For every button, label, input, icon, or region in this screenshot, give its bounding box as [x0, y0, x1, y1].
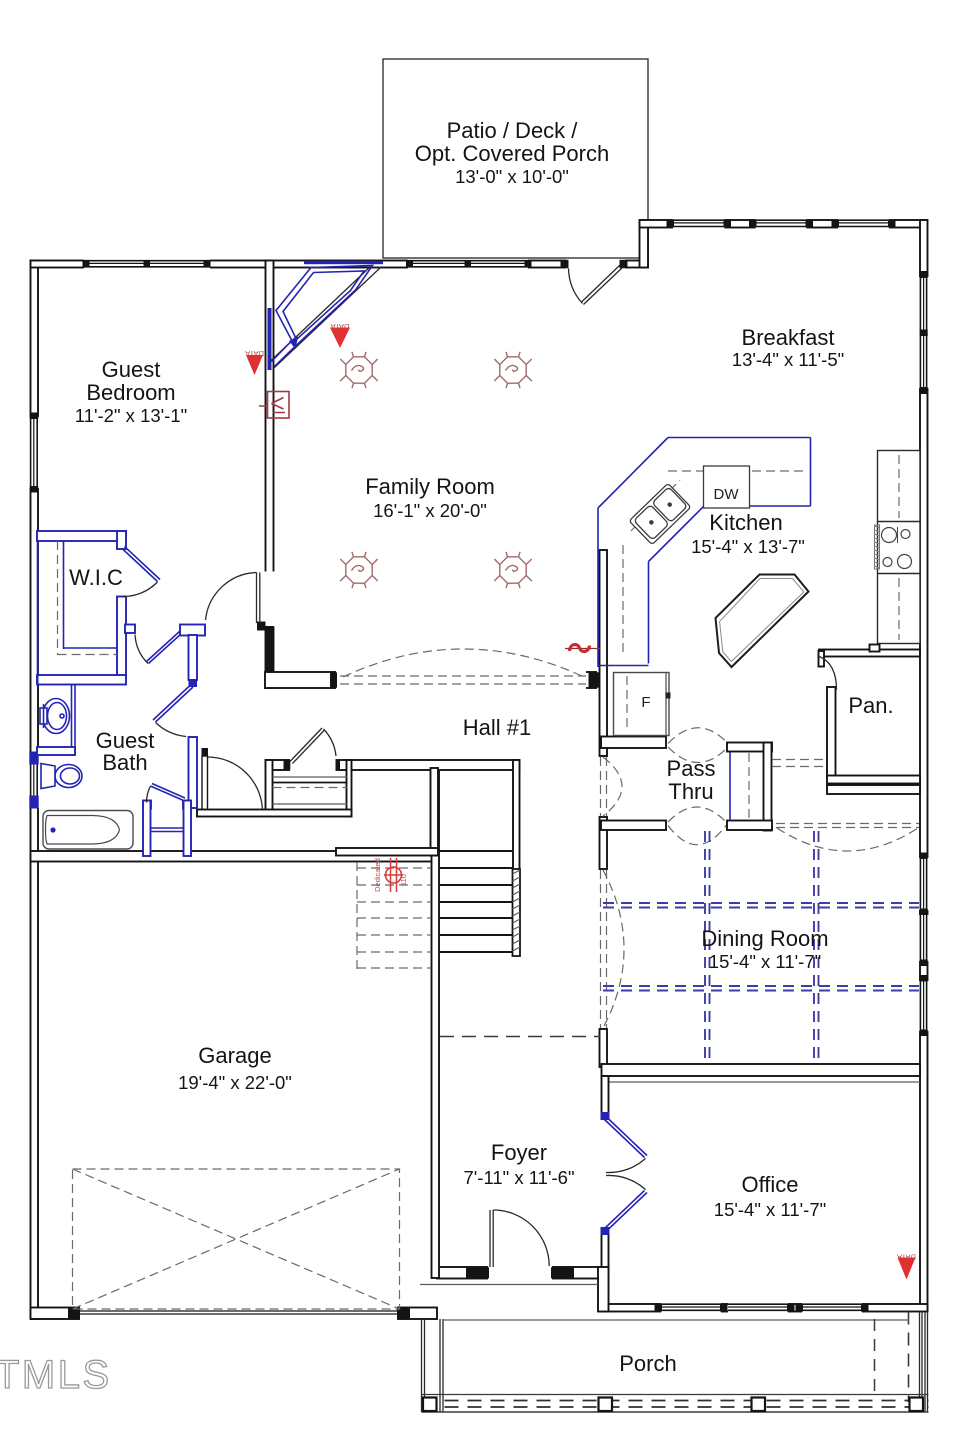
svg-text:7'-11" x 11'-6": 7'-11" x 11'-6" [463, 1167, 574, 1188]
svg-text:Dedicated: Dedicated [373, 858, 382, 892]
svg-text:Guest: Guest [102, 357, 161, 382]
svg-text:Kitchen: Kitchen [709, 510, 782, 535]
svg-text:15'-4" x 13'-7": 15'-4" x 13'-7" [691, 536, 805, 557]
svg-text:Bath: Bath [102, 750, 147, 775]
svg-text:Office: Office [741, 1172, 798, 1197]
svg-text:Porch: Porch [619, 1351, 676, 1376]
svg-text:16'-1" x 20'-0": 16'-1" x 20'-0" [373, 500, 487, 521]
svg-text:DATA: DATA [331, 322, 350, 331]
svg-text:15'-4" x 11'-7": 15'-4" x 11'-7" [714, 1199, 826, 1220]
svg-text:13'-4" x 11'-5": 13'-4" x 11'-5" [732, 349, 844, 370]
svg-text:DATA: DATA [897, 1253, 916, 1262]
svg-text:Opt. Covered Porch: Opt. Covered Porch [415, 141, 609, 166]
svg-text:Thru: Thru [668, 779, 713, 804]
svg-text:11'-2" x 13'-1": 11'-2" x 13'-1" [75, 405, 187, 426]
svg-text:Dining Room: Dining Room [701, 926, 828, 951]
svg-text:Garage: Garage [198, 1043, 271, 1068]
svg-text:Pan.: Pan. [848, 693, 893, 718]
svg-text:F: F [641, 694, 650, 711]
svg-text:Family Room: Family Room [365, 474, 495, 499]
svg-text:DW: DW [714, 486, 740, 503]
svg-text:DATA: DATA [245, 349, 264, 358]
svg-text:110: 110 [399, 874, 408, 886]
svg-text:Bedroom: Bedroom [86, 380, 175, 405]
svg-text:15'-4" x 11'-7": 15'-4" x 11'-7" [709, 951, 821, 972]
svg-text:Pass: Pass [667, 756, 716, 781]
svg-text:13'-0" x 10'-0": 13'-0" x 10'-0" [455, 166, 569, 187]
svg-text:19'-4" x 22'-0": 19'-4" x 22'-0" [178, 1072, 292, 1093]
svg-text:TMLS: TMLS [0, 1353, 112, 1397]
svg-text:W.I.C: W.I.C [69, 565, 123, 590]
svg-text:Hall #1: Hall #1 [463, 715, 531, 740]
svg-text:Breakfast: Breakfast [742, 325, 835, 350]
svg-text:Foyer: Foyer [491, 1140, 547, 1165]
svg-text:Patio / Deck /: Patio / Deck / [447, 118, 579, 143]
